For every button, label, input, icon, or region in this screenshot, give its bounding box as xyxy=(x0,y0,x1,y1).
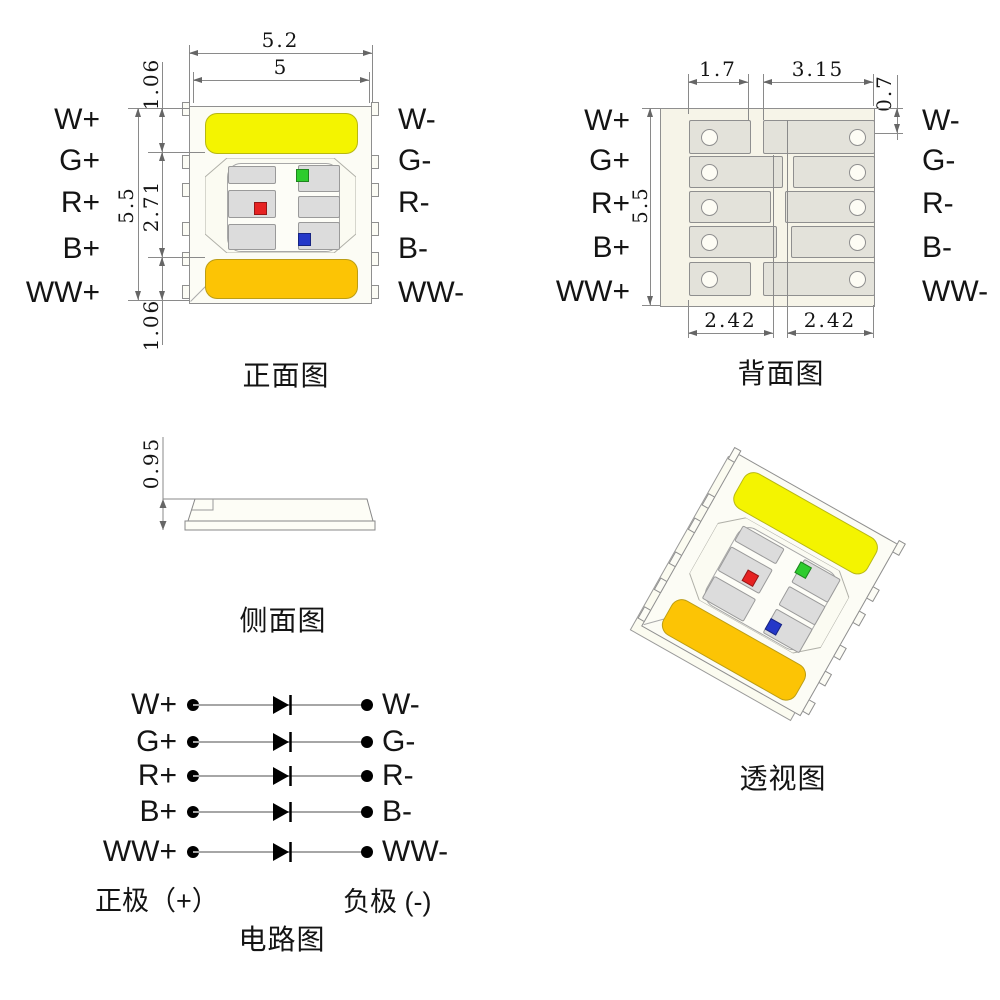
dim-line xyxy=(763,82,873,83)
front-label-W+: W+ xyxy=(0,102,100,137)
dim-line xyxy=(873,305,874,338)
dim-arrow xyxy=(159,108,165,117)
back-label-W+: W+ xyxy=(518,103,630,138)
dim-arrow xyxy=(688,330,697,336)
front-label-R+: R+ xyxy=(0,185,100,220)
dim-arrow xyxy=(864,79,873,85)
dim-arrow xyxy=(159,291,165,300)
dim-line xyxy=(787,120,788,338)
dim-arrow xyxy=(159,143,165,152)
back-label-G+: G+ xyxy=(518,143,630,178)
dim-line xyxy=(773,155,774,338)
back-label-G-: G- xyxy=(922,143,955,178)
dim-arrow xyxy=(647,108,653,117)
dim-arrow xyxy=(193,77,202,83)
dim-arrow xyxy=(135,108,141,117)
dim-line xyxy=(148,152,205,153)
dim-arrow xyxy=(763,79,772,85)
front-label-G+: G+ xyxy=(0,143,100,178)
dim-line xyxy=(369,72,370,103)
dim-arrow xyxy=(894,108,900,117)
dim-arrow xyxy=(159,257,165,266)
dim-arrow xyxy=(894,124,900,133)
dim-line xyxy=(138,108,139,300)
back-label-R-: R- xyxy=(922,186,954,221)
front-label-WW-: WW- xyxy=(398,275,464,310)
dim-arrow xyxy=(647,296,653,305)
front-label-WW+: WW+ xyxy=(0,275,100,310)
front-label-G-: G- xyxy=(398,143,431,178)
dim-arrow xyxy=(363,50,372,56)
dim-line xyxy=(162,62,163,345)
back-label-B-: B- xyxy=(922,230,952,265)
back-label-WW+: WW+ xyxy=(518,274,630,309)
back-label-B+: B+ xyxy=(518,230,630,265)
dimension-linework xyxy=(0,0,1000,1000)
dim-arrow xyxy=(787,330,796,336)
dim-arrow xyxy=(159,248,165,257)
dim-arrow xyxy=(135,291,141,300)
dim-line xyxy=(875,133,903,134)
front-label-R-: R- xyxy=(398,185,430,220)
dim-line xyxy=(642,305,660,306)
dim-line xyxy=(148,257,205,258)
dim-line xyxy=(873,74,874,106)
back-label-WW-: WW- xyxy=(922,274,988,309)
dim-arrow xyxy=(764,330,773,336)
dim-line xyxy=(748,74,749,120)
dim-arrow xyxy=(189,50,198,56)
front-label-B-: B- xyxy=(398,231,428,266)
dim-arrow xyxy=(864,330,873,336)
dim-line xyxy=(787,333,873,334)
dim-arrow xyxy=(688,79,697,85)
back-label-R+: R+ xyxy=(518,186,630,221)
dim-line xyxy=(372,45,373,103)
front-label-W-: W- xyxy=(398,102,436,137)
back-label-W-: W- xyxy=(922,103,960,138)
dim-line xyxy=(193,80,369,81)
dim-line xyxy=(650,108,651,305)
dim-line xyxy=(688,333,773,334)
front-label-B+: B+ xyxy=(0,231,100,266)
led-datasheet-drawing: { "front_view": { "title": "正面图" }, "bac… xyxy=(0,0,1000,1000)
dim-line xyxy=(189,53,372,54)
dim-line xyxy=(128,300,189,301)
dim-arrow xyxy=(739,79,748,85)
dim-arrow xyxy=(159,152,165,161)
dim-arrow xyxy=(360,77,369,83)
